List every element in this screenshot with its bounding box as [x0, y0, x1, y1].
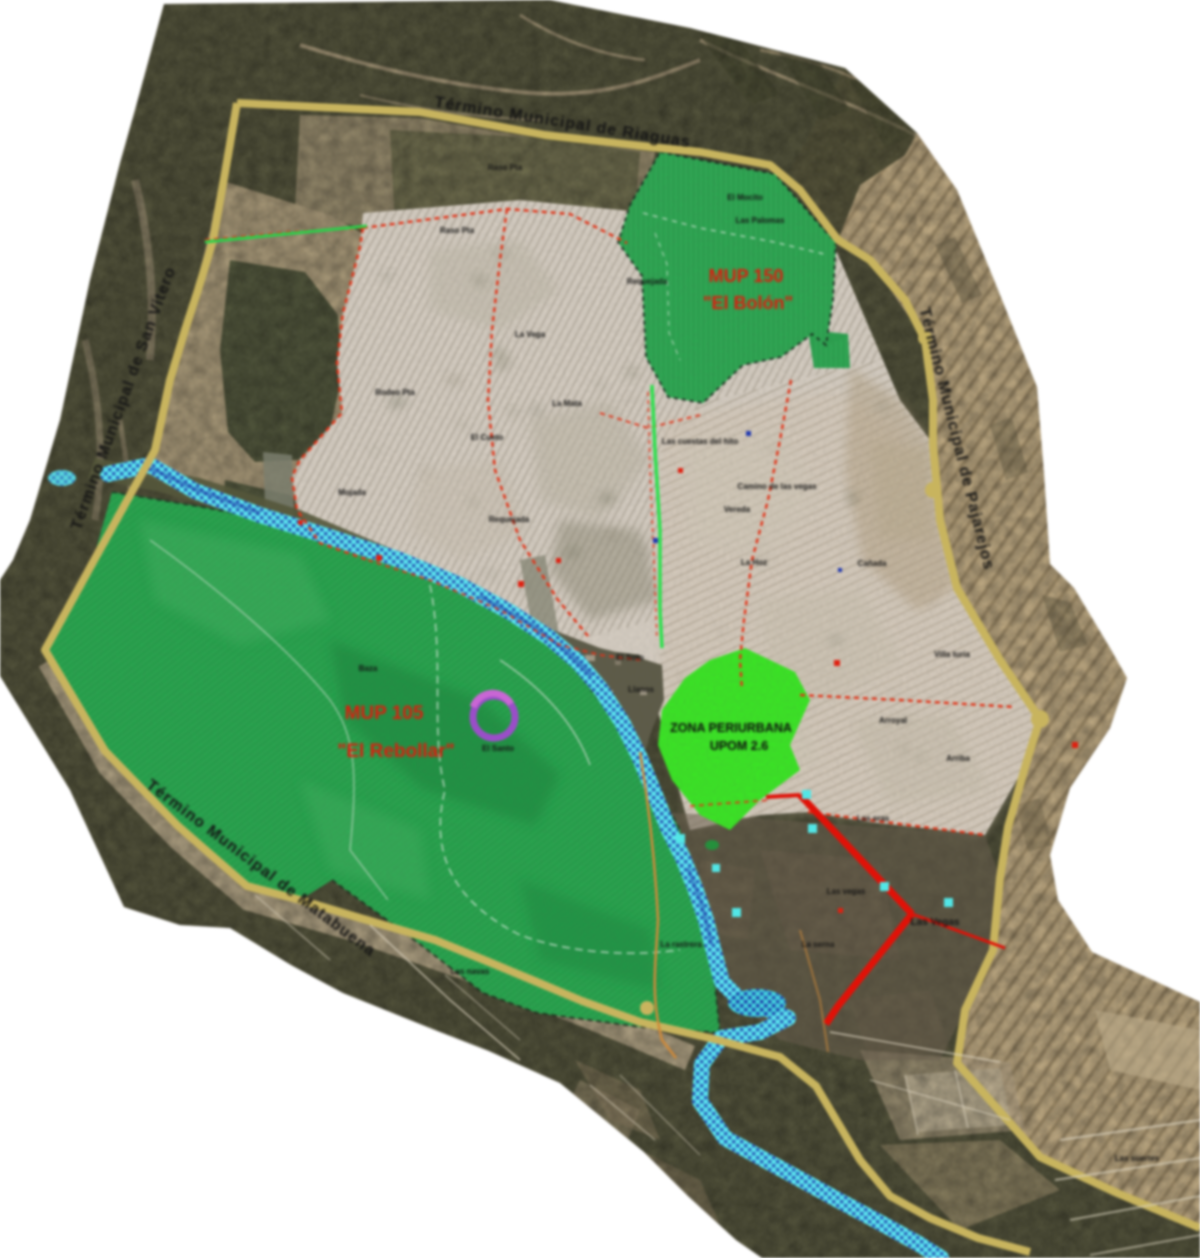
svg-text:El Santo: El Santo	[482, 744, 514, 753]
svg-text:Raso Pta: Raso Pta	[440, 226, 475, 235]
svg-text:La Mata: La Mata	[552, 399, 582, 408]
svg-text:Rodeo Pta: Rodeo Pta	[375, 388, 415, 397]
svg-text:Arroyal: Arroyal	[879, 716, 907, 725]
svg-text:La serna: La serna	[802, 940, 835, 949]
svg-text:Las vegas: Las vegas	[827, 887, 866, 896]
svg-text:Las suertes: Las suertes	[1115, 1154, 1160, 1163]
svg-text:El Cueto: El Cueto	[471, 433, 504, 442]
svg-text:ZONA PERIURBANA: ZONA PERIURBANA	[670, 721, 792, 735]
svg-text:Camino de las vegas: Camino de las vegas	[737, 482, 817, 491]
svg-text:La rastrera: La rastrera	[660, 940, 702, 949]
svg-text:El Mocito: El Mocito	[727, 193, 763, 202]
svg-text:Mojada: Mojada	[338, 488, 366, 497]
svg-text:La Hoz: La Hoz	[741, 558, 767, 567]
svg-text:Las cuestas del hito: Las cuestas del hito	[662, 437, 739, 446]
svg-text:El Soto: El Soto	[616, 653, 644, 662]
svg-text:MUP 105: MUP 105	[345, 703, 424, 724]
svg-text:Requejada: Requejada	[627, 277, 668, 286]
svg-text:Las navas: Las navas	[451, 967, 490, 976]
svg-text:Cañada: Cañada	[858, 559, 887, 568]
svg-text:"El Rebollar": "El Rebollar"	[337, 741, 454, 762]
svg-text:MUP 150: MUP 150	[709, 266, 784, 286]
svg-text:Villa turia: Villa turia	[934, 650, 970, 659]
svg-text:UPOM 2.6: UPOM 2.6	[710, 739, 768, 753]
svg-text:Raso Pta: Raso Pta	[488, 163, 523, 172]
svg-text:Llanos: Llanos	[628, 685, 654, 694]
svg-text:Requejada: Requejada	[489, 515, 530, 524]
svg-text:Las eras: Las eras	[857, 814, 890, 823]
svg-text:Baza: Baza	[359, 664, 378, 673]
svg-text:Las Palomas: Las Palomas	[736, 216, 785, 225]
svg-text:La Vega: La Vega	[515, 330, 546, 339]
svg-text:Arriba: Arriba	[946, 754, 970, 763]
svg-text:Vereda: Vereda	[724, 505, 751, 514]
svg-text:Las Vegas: Las Vegas	[911, 917, 960, 928]
svg-text:"El Bolón": "El Bolón"	[703, 293, 793, 313]
